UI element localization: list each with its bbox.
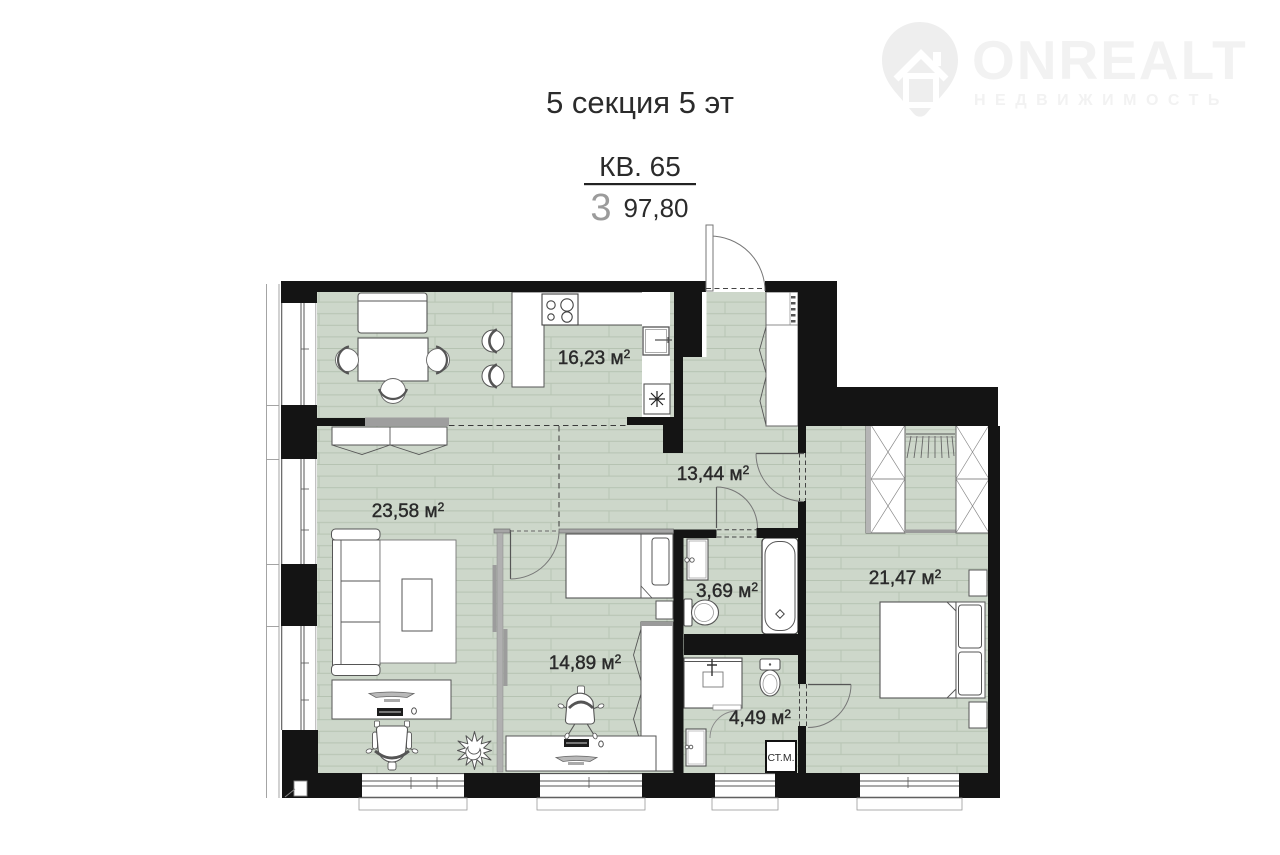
svg-text:НЕДВИЖИМОСТЬ: НЕДВИЖИМОСТЬ <box>974 92 1229 109</box>
svg-text:4,49 м2: 4,49 м2 <box>729 707 791 729</box>
svg-text:3,69 м2: 3,69 м2 <box>696 580 758 602</box>
svg-text:14,89 м2: 14,89 м2 <box>549 652 622 674</box>
svg-text:СТ.М.: СТ.М. <box>767 752 794 764</box>
svg-text:13,44 м2: 13,44 м2 <box>677 463 750 485</box>
svg-text:21,47 м2: 21,47 м2 <box>869 567 942 589</box>
svg-text:97,80: 97,80 <box>623 193 688 223</box>
svg-text:ONREALT: ONREALT <box>972 29 1248 91</box>
svg-text:КВ. 65: КВ. 65 <box>599 151 681 182</box>
svg-text:3: 3 <box>590 187 611 229</box>
svg-text:5 секция 5 эт: 5 секция 5 эт <box>546 85 734 120</box>
svg-text:16,23 м2: 16,23 м2 <box>558 347 631 369</box>
svg-text:23,58 м2: 23,58 м2 <box>372 500 445 522</box>
